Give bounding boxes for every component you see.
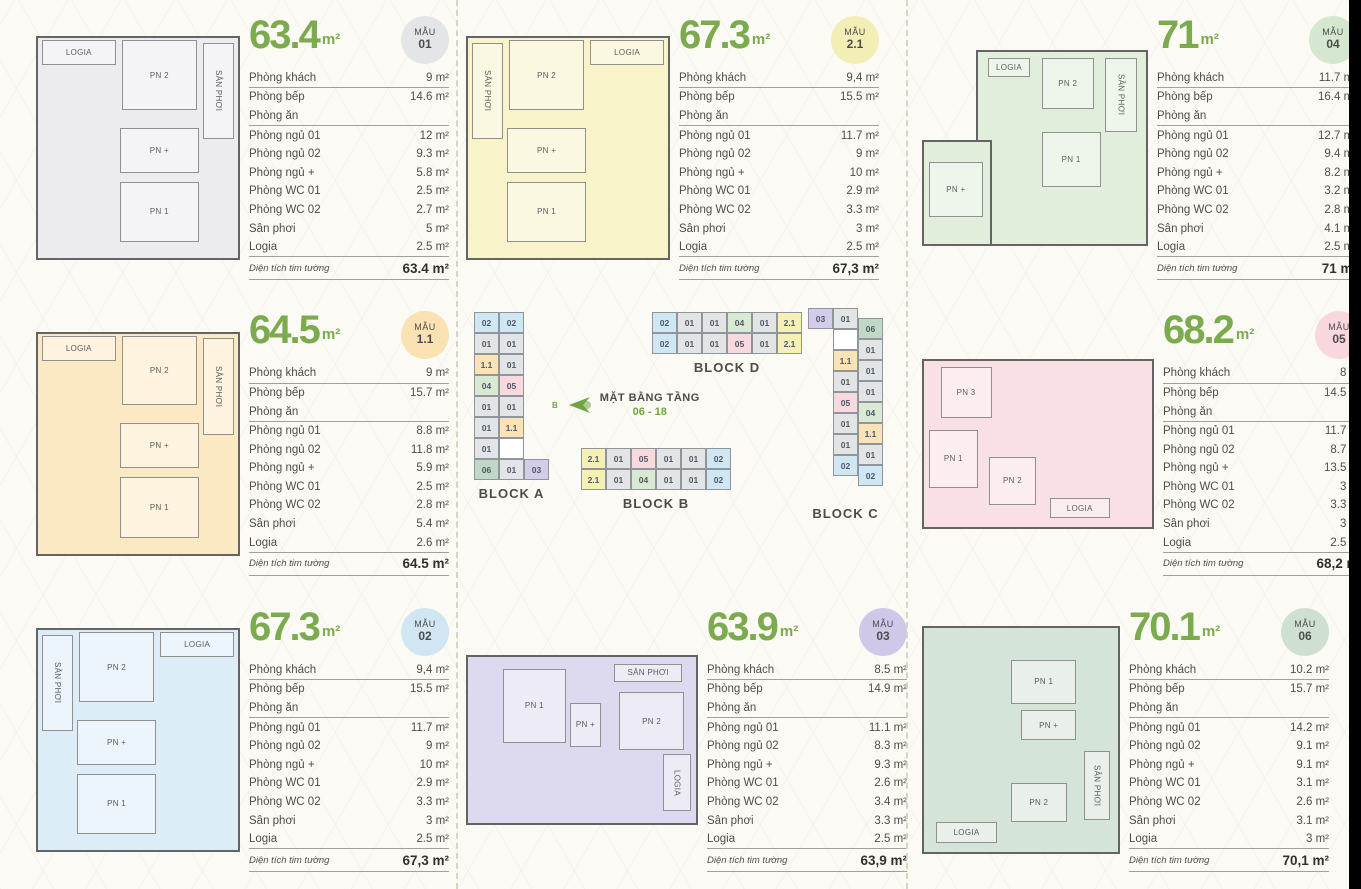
spec-row: Logia2.6 m² — [249, 533, 449, 553]
plan-room: PN 2 — [989, 457, 1035, 505]
spec-label: Phòng ngủ 01 — [1129, 722, 1201, 734]
unit-headline: 70.1 m² MẪU 06 — [1129, 608, 1329, 656]
unit-headline: 63.4 m² MẪU 01 — [249, 16, 449, 64]
grid-cell: LOGIAPN 2SÂN PHƠIPN +PN 1 64.5 m² MẪU 1.… — [0, 296, 456, 591]
spec-label: Phòng ngủ 02 — [707, 740, 779, 752]
spec-row: Logia2.5 m² — [1163, 533, 1361, 553]
spec-label: Phòng ngủ + — [249, 462, 315, 474]
spec-value: 2.5 m² — [416, 833, 449, 845]
spec-value: 3.3 m² — [874, 815, 907, 827]
spec-value: 2.9 m² — [846, 185, 879, 197]
spec-value: 8.3 m² — [874, 740, 907, 752]
spec-value: 2.7 m² — [416, 204, 449, 216]
diagram-block-label: BLOCK A — [474, 486, 549, 501]
spec-label: Phòng WC 01 — [249, 481, 321, 493]
page-background: LOGIAPN 2SÂN PHƠIPN +PN 1 63.4 m² MẪU 01… — [0, 0, 1361, 889]
unit-card: PN 1PN +PN 2SÂN PHƠILOGIA 70.1 m² MẪU 06… — [922, 608, 1343, 873]
spec-rows: Phòng khách9 m²Phòng bếp14.6 m²Phòng ănP… — [249, 69, 449, 258]
spec-rows: Phòng khách8.5 m²Phòng bếp14.9 m²Phòng ă… — [707, 661, 907, 850]
plan-room: PN 3 — [941, 367, 992, 418]
model-badge-number: 05 — [1332, 333, 1345, 346]
spec-row: Phòng ngủ +10 m² — [679, 164, 879, 183]
spec-row: Phòng WC 022.8 m² — [249, 496, 449, 515]
spec-row: Phòng ngủ 0112.7 m² — [1157, 126, 1357, 145]
spec-row: Phòng ngủ 029 m² — [249, 737, 449, 756]
unit-area: 70.1 — [1129, 608, 1199, 646]
compass-north-label: B — [552, 401, 558, 410]
diagram-cell: 01 — [702, 333, 727, 354]
unit-card: SÂN PHƠIPN 2LOGIAPN +PN 1 67.3 m² MẪU 02… — [36, 608, 452, 873]
plan-room: LOGIA — [936, 822, 997, 843]
model-badge-number: 02 — [418, 630, 431, 643]
unit-area-unit: m² — [1236, 326, 1254, 343]
plan-room: PN 1 — [77, 774, 157, 834]
unit-headline: 67.3 m² MẪU 2.1 — [679, 16, 879, 64]
diagram-cell: 01 — [474, 438, 499, 459]
spec-row: Phòng ngủ +5.8 m² — [249, 164, 449, 183]
spec-label: Phòng bếp — [249, 387, 305, 399]
spec-value: 3.3 m² — [846, 204, 879, 216]
plan-room: PN 1 — [1011, 660, 1076, 703]
spec-label: Phòng bếp — [249, 683, 305, 695]
spec-label: Phòng khách — [1129, 664, 1196, 676]
diagram-cell: 04 — [727, 312, 752, 333]
spec-label: Logia — [1129, 833, 1157, 845]
diagram-cell: 01 — [833, 308, 858, 329]
total-label: Diện tích tim tường — [1129, 855, 1209, 866]
spec-value: 14.2 m² — [1290, 722, 1329, 734]
spec-label: Phòng ngủ 02 — [249, 148, 321, 160]
spec-row: Phòng WC 022.6 m² — [1129, 793, 1329, 812]
plan-room: PN 2 — [1011, 783, 1066, 822]
spec-value: 9,4 m² — [846, 72, 879, 84]
floorplan-grid: LOGIAPN 2SÂN PHƠIPN +PN 1 63.4 m² MẪU 01… — [0, 0, 1349, 889]
unit-area: 67.3 — [679, 16, 749, 54]
spec-row: Phòng bếp15.7 m² — [249, 384, 449, 403]
diagram-cell: 03 — [808, 308, 833, 329]
diagram-cell: 02 — [833, 455, 858, 476]
spec-label: Logia — [679, 241, 707, 253]
spec-value: 5.9 m² — [416, 462, 449, 474]
spec-label: Phòng WC 02 — [707, 796, 779, 808]
unit-area: 63.4 — [249, 16, 319, 54]
spec-row: Sân phơi3 m² — [679, 219, 879, 238]
spec-row: Phòng ngủ 0112 m² — [249, 126, 449, 145]
spec-label: Phòng ăn — [679, 110, 728, 122]
diagram-cell: 01 — [499, 354, 524, 375]
spec-label: Phòng khách — [249, 664, 316, 676]
spec-label: Phòng WC 01 — [1157, 185, 1229, 197]
spec-label: Phòng ăn — [1129, 702, 1178, 714]
total-label: Diện tích tim tường — [249, 855, 329, 866]
spec-label: Phòng ngủ 02 — [1129, 740, 1201, 752]
diagram-cell: 05 — [833, 392, 858, 413]
spec-label: Phòng ngủ 02 — [679, 148, 751, 160]
total-label: Diện tích tim tường — [679, 263, 759, 274]
diagram-cell: 01 — [752, 333, 777, 354]
spec-value: 8.8 m² — [416, 425, 449, 437]
spec-label: Phòng khách — [1163, 367, 1230, 379]
spec-row: Phòng bếp16.4 m² — [1157, 88, 1357, 107]
spec-label: Phòng WC 02 — [1129, 796, 1201, 808]
spec-label: Phòng ngủ + — [679, 167, 745, 179]
unit-area-unit: m² — [322, 31, 340, 48]
spec-value: 9 m² — [426, 367, 449, 379]
model-badge: MẪU 2.1 — [831, 16, 879, 64]
total-row: Diện tích tim tường 63.4 m² — [249, 257, 449, 280]
spec-row: Phòng ngủ 029.1 m² — [1129, 737, 1329, 756]
spec-row: Phòng ngủ 0111.7 m² — [249, 718, 449, 737]
plan-room: LOGIA — [160, 632, 233, 657]
unit-headline: 68.2 m² MẪU 05 — [1163, 311, 1361, 359]
plan-room: LOGIA — [42, 336, 115, 361]
spec-row: Phòng ăn — [249, 699, 449, 719]
diagram-cell: 2.1 — [581, 469, 606, 490]
grid-cell: LOGIAPN 2SÂN PHƠIPN +PN 1 63.4 m² MẪU 01… — [0, 0, 456, 296]
spec-row: Phòng khách9,4 m² — [249, 661, 449, 681]
spec-row: Sân phơi4.1 m² — [1157, 219, 1357, 238]
spec-row: Phòng WC 013 m² — [1163, 478, 1361, 497]
spec-row: Phòng khách8 m² — [1163, 364, 1361, 384]
unit-card: LOGIAPN 2SÂN PHƠIPN +PN 1 64.5 m² MẪU 1.… — [36, 311, 452, 576]
unit-card: LOGIAPN 2SÂN PHƠIPN 1PN + 71 m² MẪU 04 P… — [922, 16, 1343, 281]
compass-icon — [566, 395, 592, 415]
spec-row: Phòng bếp15.5 m² — [249, 680, 449, 699]
unit-area: 67.3 — [249, 608, 319, 646]
spec-label: Phòng WC 01 — [679, 185, 751, 197]
unit-headline: 71 m² MẪU 04 — [1157, 16, 1357, 64]
diagram-block-label: BLOCK B — [581, 496, 731, 511]
total-value: 63.4 m² — [402, 261, 449, 276]
spec-row: Phòng bếp14.9 m² — [707, 680, 907, 699]
spec-rows: Phòng khách10.2 m²Phòng bếp15.7 m²Phòng … — [1129, 661, 1329, 850]
spec-value: 2.6 m² — [874, 777, 907, 789]
total-row: Diện tích tim tường 68,2 m² — [1163, 553, 1361, 576]
diagram-cell: 02 — [706, 469, 731, 490]
total-label: Diện tích tim tường — [1163, 558, 1243, 569]
diagram-cell: 01 — [499, 459, 524, 480]
spec-row: Phòng ngủ +9.3 m² — [707, 756, 907, 775]
plan-room: PN 2 — [122, 336, 197, 405]
spec-value: 2.5 m² — [846, 241, 879, 253]
diagram-cell: 01 — [656, 469, 681, 490]
spec-row: Phòng khách9 m² — [249, 69, 449, 89]
spec-row: Phòng ngủ +9.1 m² — [1129, 756, 1329, 775]
spec-rows: Phòng khách9,4 m²Phòng bếp15.5 m²Phòng ă… — [679, 69, 879, 258]
spec-label: Phòng bếp — [1129, 683, 1185, 695]
spec-value: 9.1 m² — [1296, 759, 1329, 771]
plan-room: LOGIA — [988, 58, 1031, 78]
grid-cell: PN 1PN +PN 2SÂN PHƠILOGIA 70.1 m² MẪU 06… — [906, 591, 1349, 889]
plan-room: SÂN PHƠI — [42, 635, 73, 731]
spec-label: Phòng WC 01 — [1163, 481, 1235, 493]
spec-row: Phòng ăn — [707, 699, 907, 719]
total-row: Diện tích tim tường 63,9 m² — [707, 849, 907, 872]
spec-row: Sân phơi5.4 m² — [249, 515, 449, 534]
spec-label: Phòng WC 01 — [249, 777, 321, 789]
spec-label: Logia — [1157, 241, 1185, 253]
diagram-cell: 05 — [727, 333, 752, 354]
spec-label: Phòng ăn — [707, 702, 756, 714]
spec-row: Phòng bếp14.6 m² — [249, 88, 449, 107]
spec-value: 2.5 m² — [416, 481, 449, 493]
spec-value: 9.1 m² — [1296, 740, 1329, 752]
spec-label: Phòng WC 01 — [1129, 777, 1201, 789]
spec-label: Phòng ngủ + — [1157, 167, 1223, 179]
spec-value: 11.7 m² — [411, 722, 449, 734]
spec-row: Phòng ngủ +5.9 m² — [249, 459, 449, 478]
spec-value: 9 m² — [426, 72, 449, 84]
spec-label: Phòng ngủ + — [1163, 462, 1229, 474]
spec-row: Phòng ngủ 018.8 m² — [249, 422, 449, 441]
diagram-cell: 1.1 — [499, 417, 524, 438]
diagram-block-label: BLOCK C — [808, 506, 883, 521]
diagram-title: MẶT BẰNG TẦNG — [600, 392, 700, 404]
plan-room: SÂN PHƠI — [614, 664, 681, 683]
total-row: Diện tích tim tường 67,3 m² — [249, 849, 449, 872]
spec-row: Phòng ăn — [1157, 107, 1357, 127]
diagram-cell: 01 — [833, 371, 858, 392]
spec-label: Sân phơi — [1157, 223, 1204, 235]
unit-area-unit: m² — [322, 326, 340, 343]
spec-value: 14.9 m² — [868, 683, 907, 695]
total-row: Diện tích tim tường 71 m² — [1157, 257, 1357, 280]
diagram-cell: 01 — [681, 469, 706, 490]
spec-row: Phòng WC 012.5 m² — [249, 182, 449, 201]
spec-row: Phòng khách11.7 m² — [1157, 69, 1357, 89]
diagram-cell: 06 — [858, 318, 883, 339]
spec-value: 3.1 m² — [1296, 815, 1329, 827]
plan-room: PN + — [1021, 710, 1076, 740]
spec-value: 15.7 m² — [410, 387, 449, 399]
unit-area-unit: m² — [322, 623, 340, 640]
spec-label: Phòng ngủ 02 — [1157, 148, 1229, 160]
spec-row: Phòng bếp15.5 m² — [679, 88, 879, 107]
plan-room: PN 1 — [1042, 132, 1101, 187]
diagram-cell: 01 — [702, 312, 727, 333]
diagram-center: B MẶT BẰNG TẦNG 06 - 18 — [552, 392, 700, 418]
spec-panel: 63.9 m² MẪU 03 Phòng khách8.5 m²Phòng bế… — [707, 608, 907, 873]
model-badge: MẪU 1.1 — [401, 311, 449, 359]
spec-row: Phòng khách8.5 m² — [707, 661, 907, 681]
spec-row: Sân phơi3 m² — [249, 811, 449, 830]
unit-headline: 67.3 m² MẪU 02 — [249, 608, 449, 656]
diagram-cell: 1.1 — [833, 350, 858, 371]
spec-row: Phòng WC 023.3 m² — [249, 793, 449, 812]
spec-panel: 67.3 m² MẪU 02 Phòng khách9,4 m²Phòng bế… — [249, 608, 449, 873]
spec-row: Phòng bếp15.7 m² — [1129, 680, 1329, 699]
diagram-cell: 01 — [858, 339, 883, 360]
spec-row: Phòng ngủ +13.5 m² — [1163, 459, 1361, 478]
spec-value: 2.5 m² — [416, 241, 449, 253]
grid-cell: LOGIAPN 2SÂN PHƠIPN 1PN + 71 m² MẪU 04 P… — [906, 0, 1349, 296]
spec-row: Phòng WC 013.1 m² — [1129, 774, 1329, 793]
spec-label: Phòng ngủ 01 — [1157, 130, 1229, 142]
diagram-cell: 04 — [631, 469, 656, 490]
floor-plan: SÂN PHƠIPN 2LOGIAPN +PN 1 — [36, 628, 240, 852]
spec-label: Logia — [249, 241, 277, 253]
spec-rows: Phòng khách8 m²Phòng bếp14.5 m²Phòng ănP… — [1163, 364, 1361, 553]
spec-label: Phòng ăn — [249, 406, 298, 418]
spec-row: Logia3 m² — [1129, 830, 1329, 850]
spec-value: 3 m² — [426, 815, 449, 827]
spec-row: Phòng ngủ 0111.1 m² — [707, 718, 907, 737]
grid-cell-diagram: B MẶT BẰNG TẦNG 06 - 18 BLOCK A02011.104… — [456, 296, 906, 591]
spec-label: Phòng khách — [679, 72, 746, 84]
spec-value: 12 m² — [420, 130, 449, 142]
diagram-cell: 01 — [752, 312, 777, 333]
diagram-cell: 1.1 — [474, 354, 499, 375]
spec-label: Phòng bếp — [707, 683, 763, 695]
spec-label: Phòng khách — [707, 664, 774, 676]
spec-label: Phòng WC 02 — [1157, 204, 1229, 216]
diagram-cell — [499, 438, 524, 459]
unit-headline: 64.5 m² MẪU 1.1 — [249, 311, 449, 359]
floor-diagram: B MẶT BẰNG TẦNG 06 - 18 BLOCK A02011.104… — [456, 296, 906, 591]
plan-room: SÂN PHƠI — [1084, 751, 1110, 819]
total-row: Diện tích tim tường 70,1 m² — [1129, 849, 1329, 872]
spec-value: 2.6 m² — [416, 537, 449, 549]
spec-value: 9.3 m² — [416, 148, 449, 160]
model-badge-number: 01 — [418, 38, 431, 51]
spec-label: Sân phơi — [1163, 518, 1210, 530]
spec-label: Phòng bếp — [249, 91, 305, 103]
spec-value: 3.4 m² — [874, 796, 907, 808]
floor-plan: LOGIAPN 2SÂN PHƠIPN +PN 1 — [36, 332, 240, 556]
plan-room: SÂN PHƠI — [472, 43, 503, 139]
diagram-cell — [833, 329, 858, 350]
spec-panel: 64.5 m² MẪU 1.1 Phòng khách9 m²Phòng bếp… — [249, 311, 449, 576]
spec-label: Phòng bếp — [679, 91, 735, 103]
diagram-cell: 02 — [499, 312, 524, 333]
right-edge-bar — [1349, 0, 1361, 889]
spec-label: Phòng WC 02 — [679, 204, 751, 216]
spec-label: Sân phơi — [249, 518, 296, 530]
plan-room: PN + — [120, 423, 200, 468]
floor-plan: PN 3PN 1PN 2LOGIA — [922, 359, 1154, 529]
spec-value: 15.5 m² — [410, 683, 449, 695]
plan-room: PN + — [120, 128, 200, 173]
spec-panel: 71 m² MẪU 04 Phòng khách11.7 m²Phòng bếp… — [1157, 16, 1357, 281]
spec-row: Logia2.5 m² — [249, 830, 449, 850]
diagram-cell: 01 — [858, 381, 883, 402]
diagram-cell: 05 — [499, 375, 524, 396]
model-badge-number: 04 — [1326, 38, 1339, 51]
floor-plan: LOGIAPN 2SÂN PHƠIPN 1PN + — [922, 50, 1148, 246]
model-badge-number: 06 — [1298, 630, 1311, 643]
plan-room: PN 1 — [120, 477, 200, 537]
diagram-cell: 04 — [858, 402, 883, 423]
diagram-cell: 01 — [474, 417, 499, 438]
spec-label: Logia — [707, 833, 735, 845]
unit-headline: 63.9 m² MẪU 03 — [707, 608, 907, 656]
diagram-cell: 01 — [833, 413, 858, 434]
unit-area-unit: m² — [752, 31, 770, 48]
spec-row: Phòng WC 023.4 m² — [707, 793, 907, 812]
spec-label: Phòng khách — [249, 72, 316, 84]
spec-label: Phòng WC 01 — [707, 777, 779, 789]
model-badge: MẪU 06 — [1281, 608, 1329, 656]
spec-row: Logia2.5 m² — [1157, 238, 1357, 258]
spec-label: Sân phơi — [249, 815, 296, 827]
spec-row: Phòng WC 023.3 m² — [1163, 496, 1361, 515]
diagram-cell: 01 — [606, 469, 631, 490]
total-value: 67,3 m² — [832, 261, 879, 276]
unit-area: 71 — [1157, 16, 1198, 54]
floor-plan: SÂN PHƠIPN 2LOGIAPN +PN 1 — [466, 36, 670, 260]
spec-row: Phòng ngủ 0211.8 m² — [249, 440, 449, 459]
plan-room: PN 1 — [503, 669, 566, 744]
diagram-cell: 06 — [474, 459, 499, 480]
spec-label: Phòng ăn — [1157, 110, 1206, 122]
unit-area-unit: m² — [1202, 623, 1220, 640]
spec-row: Logia2.5 m² — [679, 238, 879, 258]
diagram-cell: 01 — [499, 333, 524, 354]
grid-cell: SÂN PHƠIPN 2LOGIAPN +PN 1 67.3 m² MẪU 2.… — [456, 0, 906, 296]
spec-value: 3.1 m² — [1296, 777, 1329, 789]
spec-value: 9 m² — [426, 740, 449, 752]
spec-label: Phòng ngủ 01 — [1163, 425, 1235, 437]
plan-room: PN + — [507, 128, 587, 173]
spec-row: Sân phơi3.3 m² — [707, 811, 907, 830]
spec-row: Phòng WC 012.9 m² — [679, 182, 879, 201]
spec-row: Phòng khách9 m² — [249, 364, 449, 384]
spec-row: Phòng ngủ 0114.2 m² — [1129, 718, 1329, 737]
spec-value: 9 m² — [856, 148, 879, 160]
spec-row: Phòng ngủ 028.3 m² — [707, 737, 907, 756]
spec-label: Sân phơi — [249, 223, 296, 235]
spec-value: 11.8 m² — [411, 444, 449, 456]
total-row: Diện tích tim tường 67,3 m² — [679, 257, 879, 280]
spec-value: 11.7 m² — [841, 130, 879, 142]
spec-label: Phòng WC 01 — [249, 185, 321, 197]
spec-value: 2.8 m² — [416, 499, 449, 511]
spec-label: Phòng khách — [249, 367, 316, 379]
spec-value: 8.5 m² — [874, 664, 907, 676]
diagram-cell: 01 — [474, 396, 499, 417]
spec-label: Phòng WC 02 — [249, 796, 321, 808]
spec-label: Phòng ăn — [1163, 406, 1212, 418]
spec-value: 2.6 m² — [1296, 796, 1329, 808]
diagram-cell: 01 — [656, 448, 681, 469]
unit-card: SÂN PHƠIPN 2LOGIAPN +PN 1 67.3 m² MẪU 2.… — [466, 16, 898, 281]
spec-row: Phòng ăn — [679, 107, 879, 127]
spec-row: Logia2.5 m² — [707, 830, 907, 850]
total-label: Diện tích tim tường — [707, 855, 787, 866]
spec-row: Sân phơi3 m² — [1163, 515, 1361, 534]
spec-row: Phòng WC 022.8 m² — [1157, 201, 1357, 220]
spec-value: 10.2 m² — [1290, 664, 1329, 676]
spec-label: Phòng WC 02 — [249, 499, 321, 511]
spec-label: Sân phơi — [679, 223, 726, 235]
spec-value: 2.9 m² — [416, 777, 449, 789]
spec-label: Phòng ngủ + — [249, 167, 315, 179]
model-badge-number: 03 — [876, 630, 889, 643]
unit-area-unit: m² — [1201, 31, 1219, 48]
diagram-cell: 2.1 — [777, 312, 802, 333]
spec-label: Sân phơi — [1129, 815, 1176, 827]
spec-value: 9,4 m² — [416, 664, 449, 676]
diagram-cell: 2.1 — [777, 333, 802, 354]
spec-label: Logia — [1163, 537, 1191, 549]
plan-room: PN 2 — [1042, 58, 1094, 109]
diagram-cell: 01 — [606, 448, 631, 469]
spec-rows: Phòng khách9,4 m²Phòng bếp15.5 m²Phòng ă… — [249, 661, 449, 850]
spec-row: Phòng ngủ 0111.7 m² — [1163, 422, 1361, 441]
spec-value: 5.4 m² — [416, 518, 449, 530]
plan-room: LOGIA — [663, 754, 691, 812]
plan-room: SÂN PHƠI — [1105, 58, 1137, 132]
